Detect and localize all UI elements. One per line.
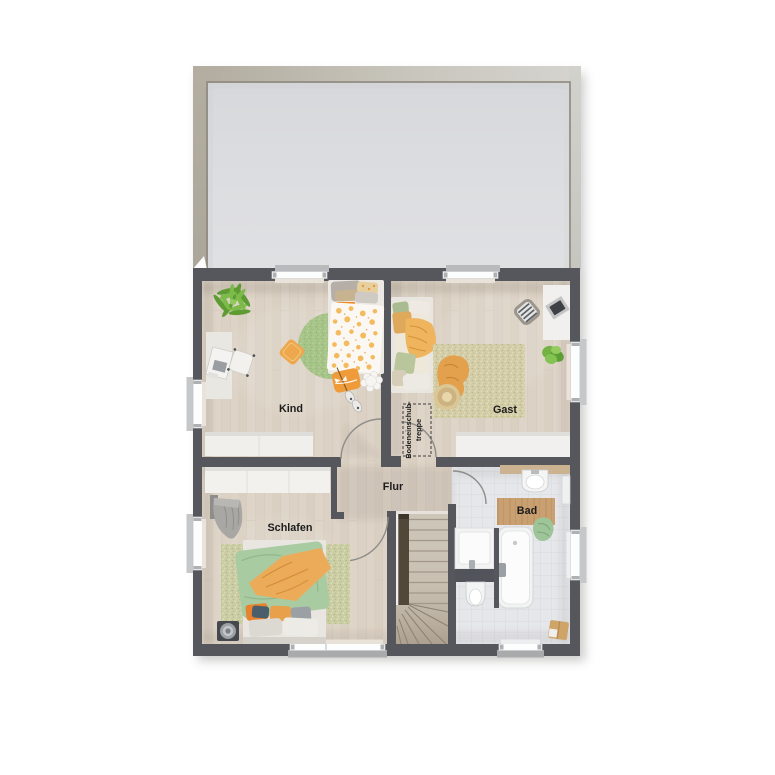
svg-text:Schlafen: Schlafen: [267, 522, 312, 534]
svg-text:Flur: Flur: [383, 481, 404, 493]
svg-text:Kind: Kind: [279, 403, 303, 415]
svg-text:Bad: Bad: [517, 505, 537, 517]
svg-text:Gast: Gast: [493, 404, 517, 416]
svg-text:Bodeneinschub-: Bodeneinschub-: [404, 401, 413, 459]
svg-text:treppe: treppe: [414, 419, 423, 441]
